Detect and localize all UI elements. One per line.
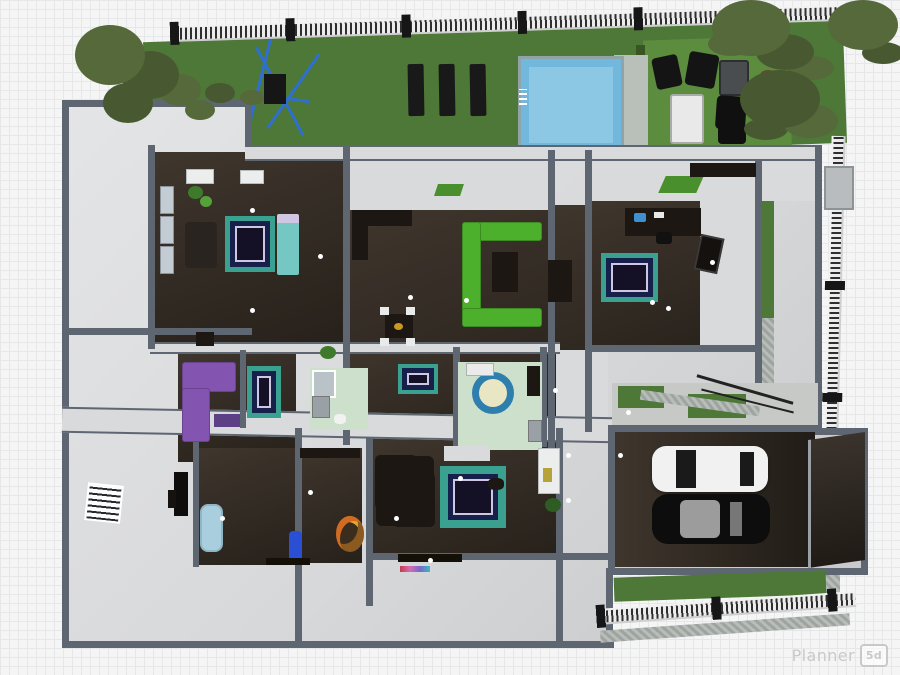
kitchen-counter[interactable]	[352, 210, 368, 260]
black-car[interactable]	[652, 494, 770, 544]
wall	[366, 438, 373, 606]
family-room-rug[interactable]	[440, 466, 506, 528]
bathroom-cabinet[interactable]	[527, 366, 540, 396]
sun-lounger[interactable]	[470, 64, 487, 116]
ceiling-lights	[250, 208, 255, 213]
wall	[193, 432, 199, 567]
planner5d-logo-icon: 5d	[860, 644, 888, 667]
car-roof-glass	[680, 500, 720, 538]
rug-inner	[611, 263, 648, 292]
green-floor-mat[interactable]	[434, 184, 464, 196]
bathtub[interactable]	[200, 504, 223, 552]
wall	[608, 425, 615, 573]
table-centerpiece	[394, 323, 403, 330]
dining-chair[interactable]	[406, 307, 415, 315]
dining-chair[interactable]	[406, 338, 415, 346]
swing-frame[interactable]	[248, 36, 318, 144]
wardrobe[interactable]	[196, 332, 214, 346]
sun-lounger[interactable]	[439, 64, 456, 116]
tree[interactable]	[712, 0, 790, 56]
plant-icon[interactable]	[200, 196, 212, 207]
dining-chair[interactable]	[380, 338, 389, 346]
car-rear-window	[730, 502, 742, 536]
bathroom-sink[interactable]	[466, 363, 494, 376]
bush[interactable]	[240, 90, 264, 105]
dining-chair[interactable]	[380, 307, 389, 315]
skylight-window[interactable]	[186, 169, 214, 184]
rug-inner	[407, 373, 429, 385]
side-window[interactable]	[160, 186, 174, 214]
wall-top	[245, 145, 822, 161]
wall	[585, 345, 762, 352]
rug-inner	[453, 479, 493, 515]
coffee-table[interactable]	[492, 252, 518, 292]
wardrobe[interactable]	[185, 222, 217, 268]
desk-chair[interactable]	[656, 232, 672, 244]
toilet[interactable]	[334, 414, 346, 424]
wall	[148, 145, 155, 349]
planner5d-3d-viewport: Planner 5d	[0, 0, 900, 675]
entry-green-mat[interactable]	[658, 176, 704, 193]
ceiling-plane	[350, 155, 550, 210]
tree[interactable]	[828, 0, 898, 50]
garage-door[interactable]	[808, 432, 865, 568]
pool-ladder-icon[interactable]	[519, 89, 527, 105]
wall	[62, 100, 69, 648]
wall	[585, 150, 592, 432]
car-rear-window	[740, 452, 754, 486]
washer[interactable]	[312, 396, 330, 418]
ceiling-plane	[444, 446, 490, 461]
patio-chair[interactable]	[684, 51, 719, 90]
car-windshield	[676, 450, 696, 488]
side-window[interactable]	[160, 216, 174, 244]
console-strip[interactable]	[266, 558, 310, 565]
sideboard-decor	[543, 468, 552, 482]
bush[interactable]	[205, 83, 235, 103]
tree[interactable]	[75, 25, 145, 85]
purple-sofa[interactable]	[182, 388, 210, 442]
hall-rug[interactable]	[398, 364, 438, 394]
floor-clutter	[488, 478, 504, 490]
desk-papers	[654, 212, 664, 218]
planner5d-watermark: Planner 5d	[792, 644, 888, 667]
rug-inner	[235, 226, 265, 262]
wall	[62, 641, 614, 648]
patio-lounger-white[interactable]	[670, 94, 704, 144]
teal-border-rug-1[interactable]	[225, 216, 275, 272]
white-car[interactable]	[652, 446, 768, 492]
wall	[240, 350, 246, 428]
pool-water-inner	[529, 67, 613, 143]
terrace-window[interactable]	[84, 482, 124, 524]
swing-box	[264, 74, 286, 104]
wall	[62, 328, 252, 335]
plant-icon[interactable]	[545, 498, 561, 512]
tree[interactable]	[740, 70, 820, 128]
rainbow-mat[interactable]	[400, 566, 430, 572]
media-strip[interactable]	[398, 554, 462, 562]
patio-ottoman[interactable]	[718, 126, 746, 144]
round-bath-rug[interactable]	[472, 372, 514, 414]
ceiling-plane	[700, 200, 756, 348]
shelf[interactable]	[300, 448, 360, 458]
teal-bed[interactable]	[277, 214, 299, 275]
purple-floor-mat[interactable]	[214, 414, 240, 427]
computer-screen-icon	[634, 213, 646, 222]
tv-bracket	[168, 490, 176, 508]
plant-icon[interactable]	[320, 346, 336, 359]
wall	[608, 425, 820, 432]
side-window[interactable]	[160, 246, 174, 274]
piano[interactable]	[548, 260, 572, 302]
watermark-brand-text: Planner	[792, 646, 855, 665]
flower-bouquet[interactable]	[336, 516, 364, 552]
washer[interactable]	[528, 420, 542, 442]
pool[interactable]	[518, 56, 624, 154]
skylight-window[interactable]	[240, 170, 264, 184]
sun-lounger[interactable]	[408, 64, 425, 116]
green-sectional-sofa[interactable]	[462, 308, 542, 327]
teal-border-rug-2[interactable]	[601, 253, 658, 302]
wardrobe[interactable]	[690, 163, 756, 177]
rug-inner	[257, 376, 271, 408]
wall-tv[interactable]	[174, 472, 188, 516]
shower[interactable]	[312, 370, 336, 398]
dining-set-large[interactable]	[378, 458, 430, 522]
bedroom3-rug[interactable]	[247, 366, 281, 418]
ac-unit[interactable]	[824, 166, 854, 210]
